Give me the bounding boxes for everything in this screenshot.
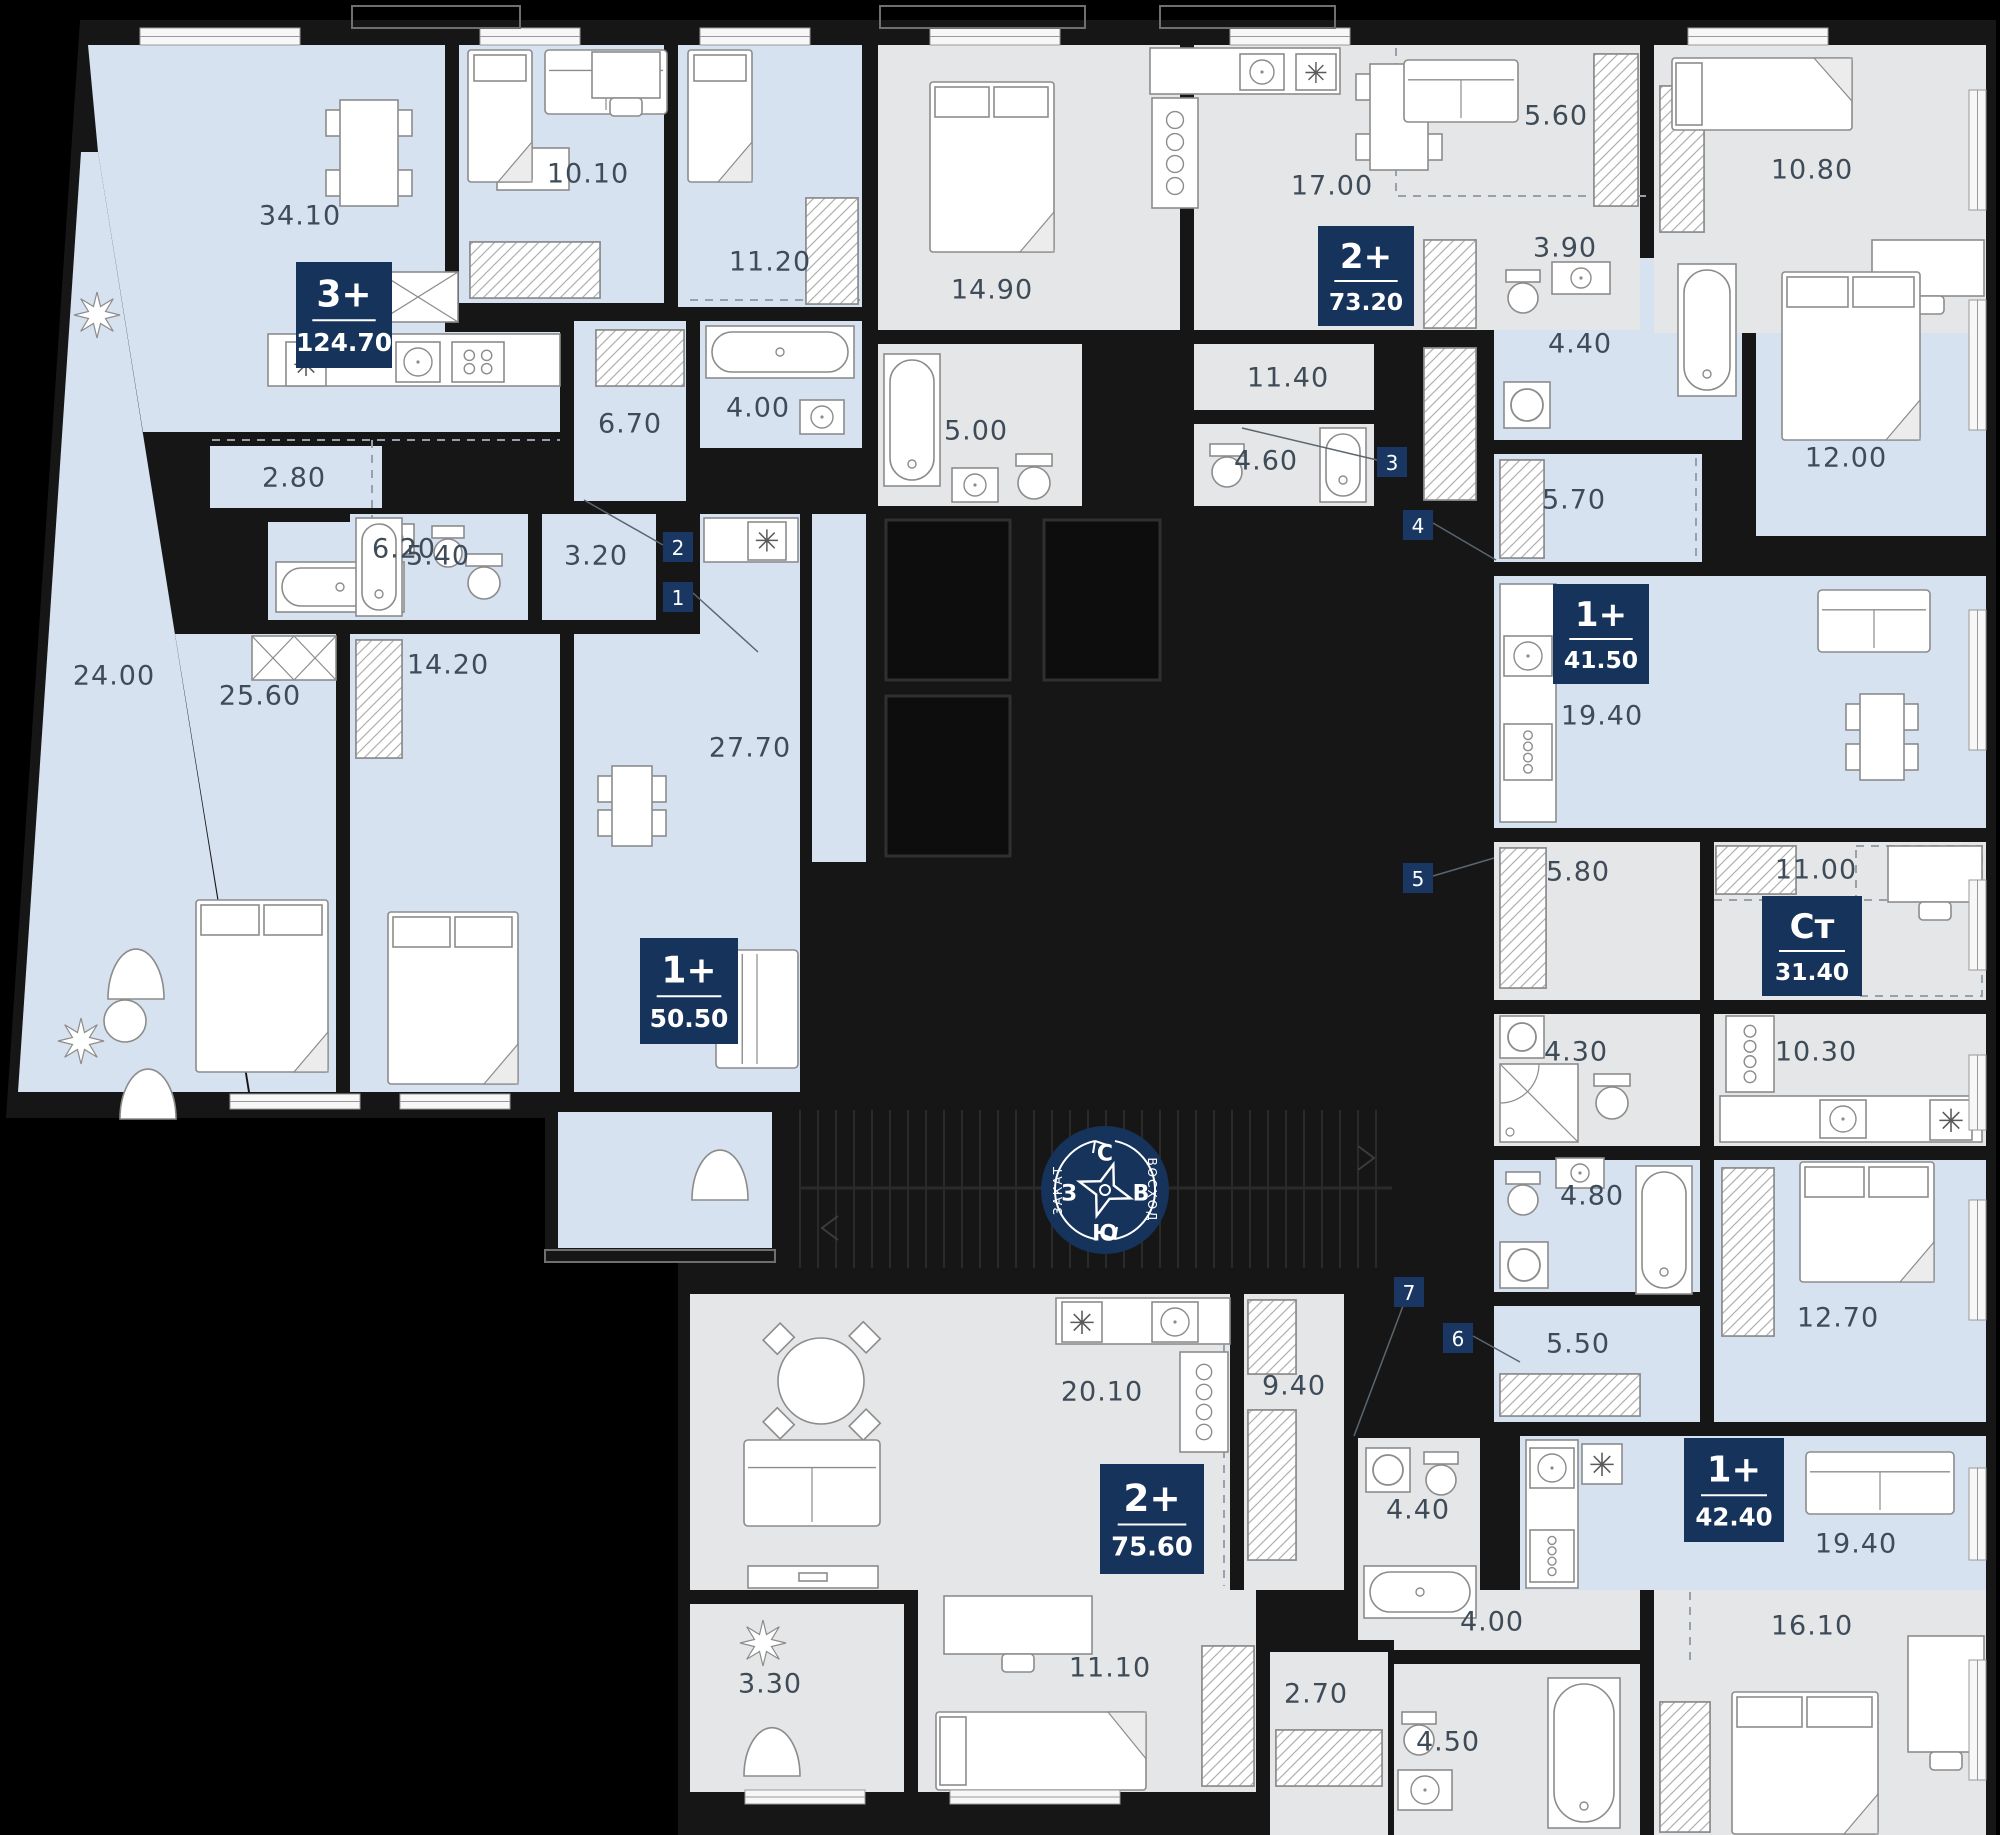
apartment-badge[interactable]: 3+124.70 — [296, 262, 392, 368]
compass-rose: СВЮЗЗАКАТВОСХОД — [1041, 1126, 1169, 1254]
window — [1688, 28, 1828, 45]
ward-icon — [1424, 348, 1476, 500]
tub-icon — [706, 326, 854, 378]
sink-icon — [952, 468, 998, 502]
wc-icon — [1506, 1172, 1540, 1215]
apartment-type-label: 2+ — [1340, 237, 1392, 277]
wc-icon — [1506, 270, 1540, 313]
ward-icon — [1500, 1374, 1640, 1416]
apartment-badge[interactable]: 2+75.60 — [1100, 1464, 1204, 1574]
apartment-type-label: 2+ — [1123, 1476, 1180, 1520]
room-area-label: 4.50 — [1416, 1727, 1480, 1758]
room-area-label: 10.30 — [1775, 1037, 1857, 1068]
wc-icon — [1016, 454, 1052, 499]
ward-icon — [596, 330, 684, 386]
elevator-shaft — [886, 520, 1010, 680]
stove-icon — [1180, 1352, 1228, 1452]
shower-icon — [1500, 1064, 1578, 1142]
counter-icon — [1500, 584, 1556, 822]
entry-number-marker[interactable]: 6 — [1443, 1323, 1473, 1353]
apartment-area-label: 73.20 — [1329, 288, 1403, 316]
bedd-icon — [388, 912, 518, 1084]
ward-icon — [1660, 1702, 1710, 1832]
wc-icon — [1424, 1452, 1458, 1495]
room-area-label: 11.40 — [1247, 363, 1329, 394]
room-area-label: 11.00 — [1775, 855, 1857, 886]
apartment-type-label: Ст — [1790, 907, 1835, 947]
entry-number-marker[interactable]: 2 — [663, 532, 693, 562]
apartment-badge[interactable]: 2+73.20 — [1318, 226, 1414, 326]
tub-icon — [884, 354, 940, 486]
room-area-label: 4.40 — [1548, 329, 1612, 360]
stove-icon — [1504, 724, 1552, 780]
room-area-label: 5.50 — [1546, 1329, 1610, 1360]
plant-icon — [58, 1018, 104, 1064]
bedd-icon — [1732, 1692, 1878, 1834]
bedd-icon — [930, 82, 1054, 252]
room-area-label: 11.20 — [729, 247, 811, 278]
room-area-label: 3.90 — [1533, 233, 1597, 264]
ward-icon — [470, 242, 600, 298]
floor-plan-svg: ✳✳✳✳✳✳34.1010.1011.204.006.702.806.205.4… — [0, 0, 2000, 1835]
apartment-type-label: 1+ — [1575, 595, 1627, 635]
sink-icon — [1504, 636, 1552, 676]
room-area-label: 12.70 — [1797, 1303, 1879, 1334]
room-area-label: 14.90 — [951, 275, 1033, 306]
room-area-label: 5.80 — [1546, 857, 1610, 888]
wash-icon — [1500, 1016, 1544, 1058]
sink-icon — [1152, 1302, 1198, 1342]
apartment-badge[interactable]: 1+42.40 — [1684, 1438, 1784, 1542]
apartment-type-label: 1+ — [661, 950, 716, 991]
entry-number-label: 6 — [1452, 1327, 1465, 1351]
ward-icon — [806, 198, 858, 304]
room-area-label: 6.70 — [598, 409, 662, 440]
entry-number-marker[interactable]: 5 — [1403, 863, 1433, 893]
room — [812, 514, 866, 862]
frig-icon: ✳ — [1582, 1444, 1622, 1484]
apartment-area-label: 42.40 — [1695, 1503, 1772, 1532]
compass-direction-label: Ю — [1092, 1222, 1118, 1247]
entry-number-label: 2 — [672, 536, 685, 560]
wardx-icon — [252, 636, 336, 680]
room-area-label: 4.40 — [1386, 1495, 1450, 1526]
apartment-area-label: 50.50 — [650, 1004, 729, 1033]
stove-icon — [1530, 1530, 1574, 1582]
entry-number-label: 7 — [1403, 1281, 1416, 1305]
wash-icon — [1504, 382, 1550, 428]
apartment-badge[interactable]: 1+41.50 — [1553, 584, 1649, 684]
window — [480, 28, 580, 45]
window — [930, 28, 1060, 45]
beds-icon — [468, 50, 532, 182]
sink-icon — [396, 342, 440, 382]
sofa-icon — [744, 1440, 880, 1526]
plant-icon — [74, 292, 120, 338]
stove-icon — [452, 342, 504, 382]
sink-icon — [1530, 1448, 1574, 1488]
svg-text:✳: ✳ — [1304, 56, 1328, 90]
svg-text:✳: ✳ — [1589, 1446, 1616, 1484]
tblr-icon — [763, 1322, 880, 1441]
entry-number-label: 3 — [1386, 451, 1399, 475]
room-area-label: 10.10 — [547, 159, 629, 190]
room-area-label: 4.00 — [1460, 1607, 1524, 1638]
ward-icon — [1276, 1730, 1382, 1786]
apartment-badge[interactable]: 1+50.50 — [640, 938, 738, 1044]
entry-number-label: 1 — [672, 586, 685, 610]
sink-icon — [800, 400, 844, 434]
window — [140, 28, 300, 45]
room-area-label: 5.70 — [1542, 485, 1606, 516]
svg-text:✳: ✳ — [1938, 1102, 1965, 1140]
compass-sunset-label: ЗАКАТ — [1051, 1165, 1065, 1215]
sink-icon — [1240, 54, 1284, 90]
window — [1969, 610, 1986, 750]
window — [1230, 28, 1350, 45]
window — [400, 1094, 510, 1109]
room-area-label: 17.00 — [1291, 171, 1373, 202]
tv-icon — [748, 1566, 878, 1588]
elevator-shaft — [1044, 520, 1160, 680]
ward-icon — [1500, 460, 1544, 558]
room-area-label: 10.80 — [1771, 155, 1853, 186]
ward-icon — [1248, 1410, 1296, 1560]
apartment-area-label: 31.40 — [1775, 958, 1849, 986]
window — [1969, 300, 1986, 430]
room-area-label: 4.60 — [1234, 446, 1298, 477]
bedsh-icon — [936, 1712, 1146, 1790]
room-area-label: 5.60 — [1524, 101, 1588, 132]
ward-icon — [1722, 1168, 1774, 1336]
room-area-label: 5.00 — [944, 416, 1008, 447]
beds-icon — [688, 50, 752, 182]
room-area-label: 12.00 — [1805, 443, 1887, 474]
room-area-label: 3.30 — [738, 1669, 802, 1700]
window — [1969, 1200, 1986, 1320]
compass-sunrise-label: ВОСХОД — [1145, 1157, 1159, 1222]
room-area-label: 27.70 — [709, 733, 791, 764]
frig-icon: ✳ — [1930, 1100, 1972, 1140]
room-area-label: 16.10 — [1771, 1611, 1853, 1642]
apartment-badge[interactable]: Ст31.40 — [1762, 896, 1862, 996]
window — [1969, 1660, 1986, 1780]
tub-icon — [1548, 1678, 1620, 1828]
room-area-label: 34.10 — [259, 201, 341, 232]
ward-icon — [356, 640, 402, 758]
wc-icon — [1594, 1074, 1630, 1119]
room-area-label: 9.40 — [1262, 1371, 1326, 1402]
sink-icon — [1398, 1770, 1452, 1810]
svg-text:✳: ✳ — [1069, 1304, 1096, 1342]
wc-icon — [466, 554, 502, 599]
room-area-label: 20.10 — [1061, 1377, 1143, 1408]
frig-icon: ✳ — [748, 522, 786, 560]
stove-icon — [1726, 1016, 1774, 1092]
room-area-label: 24.00 — [73, 661, 155, 692]
entry-number-marker[interactable]: 4 — [1403, 510, 1433, 540]
ward-icon — [1500, 848, 1546, 988]
window — [230, 1094, 360, 1109]
frig-icon: ✳ — [1296, 54, 1336, 90]
window — [700, 28, 810, 45]
stove-icon — [1152, 98, 1198, 208]
entry-number-label: 4 — [1412, 514, 1425, 538]
apartment-area-label: 75.60 — [1111, 1533, 1193, 1563]
elevator-shaft — [886, 696, 1010, 856]
sofa-icon — [1404, 60, 1518, 122]
tub-icon — [1320, 428, 1366, 502]
bedd-icon — [1800, 1162, 1934, 1282]
wash-icon — [1366, 1448, 1410, 1492]
frig-icon: ✳ — [1062, 1302, 1102, 1342]
room-area-label: 4.30 — [1544, 1037, 1608, 1068]
room-area-label: 19.40 — [1561, 701, 1643, 732]
room-area-label: 11.10 — [1069, 1653, 1151, 1684]
svg-text:✳: ✳ — [754, 525, 779, 560]
compass-direction-label: С — [1097, 1142, 1113, 1167]
room-area-label: 4.80 — [1560, 1181, 1624, 1212]
round-icon — [104, 1000, 146, 1042]
floorplan-stage: ✳✳✳✳✳✳34.1010.1011.204.006.702.806.205.4… — [0, 0, 2000, 1835]
room-area-label: 4.00 — [726, 393, 790, 424]
ward-icon — [1594, 54, 1638, 206]
bedsh-icon — [1672, 58, 1852, 130]
entry-number-marker[interactable]: 3 — [1377, 447, 1407, 477]
plant-icon — [740, 1620, 786, 1666]
apartment-type-label: 1+ — [1707, 1450, 1761, 1491]
window — [1969, 1468, 1986, 1560]
entry-number-marker[interactable]: 7 — [1394, 1277, 1424, 1307]
entry-number-label: 5 — [1412, 867, 1425, 891]
room-area-label: 14.20 — [407, 650, 489, 681]
bedd-icon — [196, 900, 328, 1072]
room-area-label: 19.40 — [1815, 1529, 1897, 1560]
ward-icon — [1202, 1646, 1254, 1786]
tub-icon — [1678, 264, 1736, 396]
room-area-label: 25.60 — [219, 681, 301, 712]
apartment-area-label: 41.50 — [1564, 646, 1638, 674]
apartment-type-label: 3+ — [316, 274, 371, 315]
tub-icon — [1636, 1166, 1692, 1294]
sink-icon — [1552, 262, 1610, 294]
window — [1969, 90, 1986, 210]
sofa-icon — [1806, 1452, 1954, 1514]
room-area-label: 2.70 — [1284, 1679, 1348, 1710]
bedd-icon — [1782, 272, 1920, 440]
entry-number-marker[interactable]: 1 — [663, 582, 693, 612]
ward-icon — [1248, 1300, 1296, 1374]
room-area-label: 3.20 — [564, 541, 628, 572]
sink-icon — [1820, 1100, 1866, 1138]
window — [1969, 880, 1986, 970]
room-area-label: 5.40 — [406, 541, 470, 572]
window — [1969, 1055, 1986, 1130]
apartment-area-label: 124.70 — [296, 328, 392, 357]
wash-icon — [1500, 1242, 1548, 1288]
window — [950, 1790, 1120, 1804]
sofa-icon — [1818, 590, 1930, 652]
window — [745, 1790, 865, 1804]
room-area-label: 2.80 — [262, 463, 326, 494]
ward-icon — [1424, 240, 1476, 328]
